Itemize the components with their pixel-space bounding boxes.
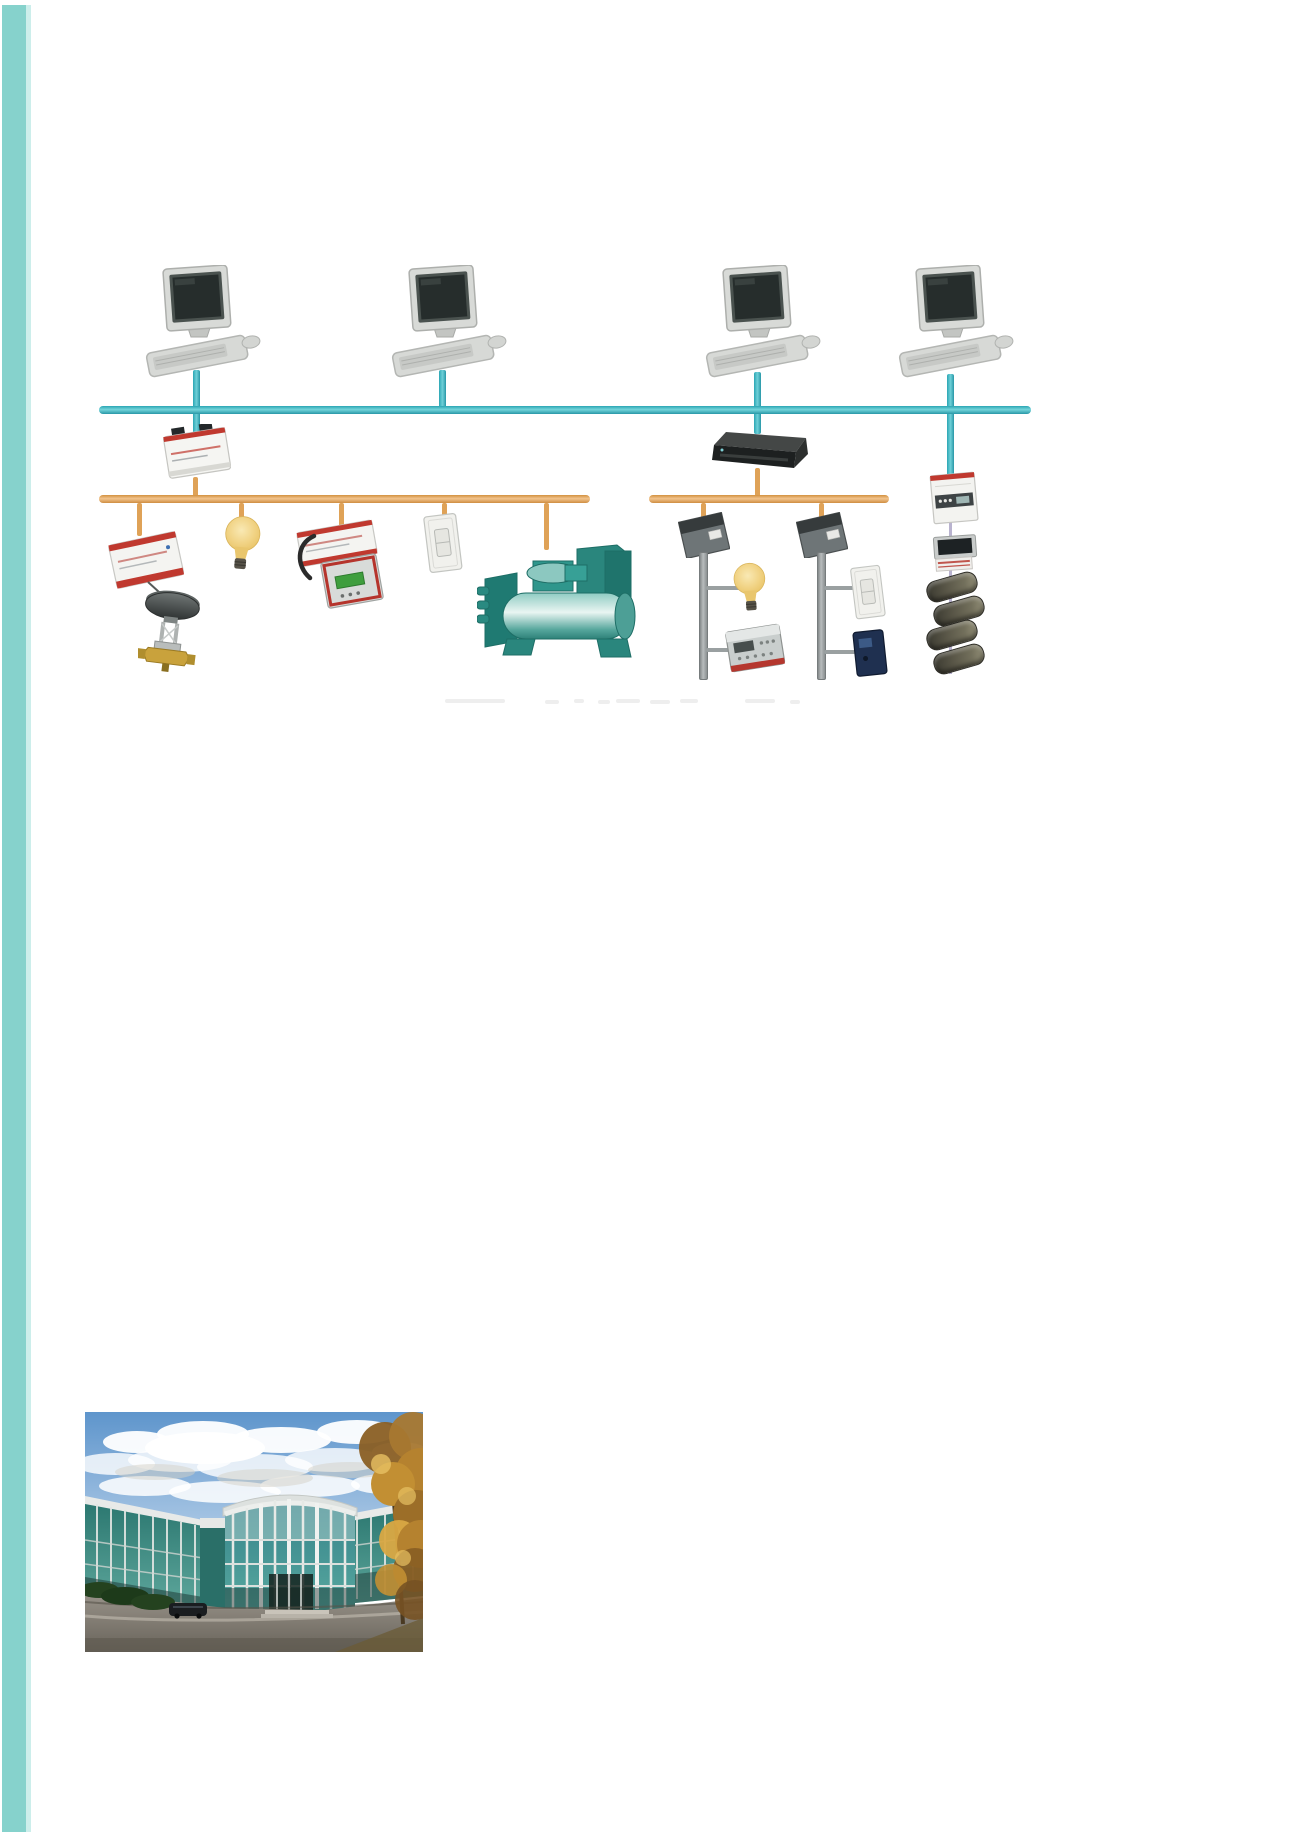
valve-actuator-icon bbox=[138, 590, 204, 678]
wall-switch-icon bbox=[421, 512, 465, 576]
workstation-icon bbox=[888, 265, 1018, 380]
print-artifact bbox=[574, 699, 584, 703]
keypad-display-icon bbox=[320, 552, 384, 610]
light-bulb-icon bbox=[218, 511, 265, 574]
network-diagram bbox=[0, 0, 1300, 780]
workstation-icon bbox=[695, 265, 825, 380]
field-bus-right bbox=[649, 495, 889, 503]
field-bus-left bbox=[99, 495, 590, 503]
brochure-page bbox=[0, 0, 1300, 1839]
print-artifact bbox=[680, 699, 698, 703]
workstation-icon bbox=[135, 265, 265, 380]
backbone-drop-line bbox=[754, 372, 761, 434]
card-reader-icon bbox=[851, 628, 889, 678]
print-artifact bbox=[790, 700, 800, 704]
print-artifact bbox=[745, 699, 775, 703]
terminal-strip-icon bbox=[934, 556, 974, 572]
backbone-drop-line bbox=[947, 374, 954, 476]
din-rail-meter-icon bbox=[928, 468, 980, 526]
ip-backbone-bus bbox=[99, 406, 1031, 414]
light-bulb-icon bbox=[729, 559, 771, 616]
dimmer-switch-icon bbox=[848, 564, 888, 622]
chiller-icon bbox=[477, 543, 647, 663]
print-artifact bbox=[598, 700, 610, 704]
print-artifact bbox=[650, 700, 670, 704]
router-icon bbox=[710, 428, 812, 474]
field-bus-stub bbox=[193, 477, 198, 497]
branch-pole bbox=[699, 552, 708, 680]
print-artifact bbox=[445, 699, 505, 703]
keypad-controller-icon bbox=[724, 620, 786, 674]
building-photo bbox=[85, 1412, 423, 1652]
print-artifact bbox=[616, 699, 640, 703]
print-artifact bbox=[545, 700, 559, 704]
workstation-icon bbox=[381, 265, 511, 380]
branch-pole bbox=[817, 552, 826, 680]
network-interface-module-icon bbox=[163, 424, 231, 480]
